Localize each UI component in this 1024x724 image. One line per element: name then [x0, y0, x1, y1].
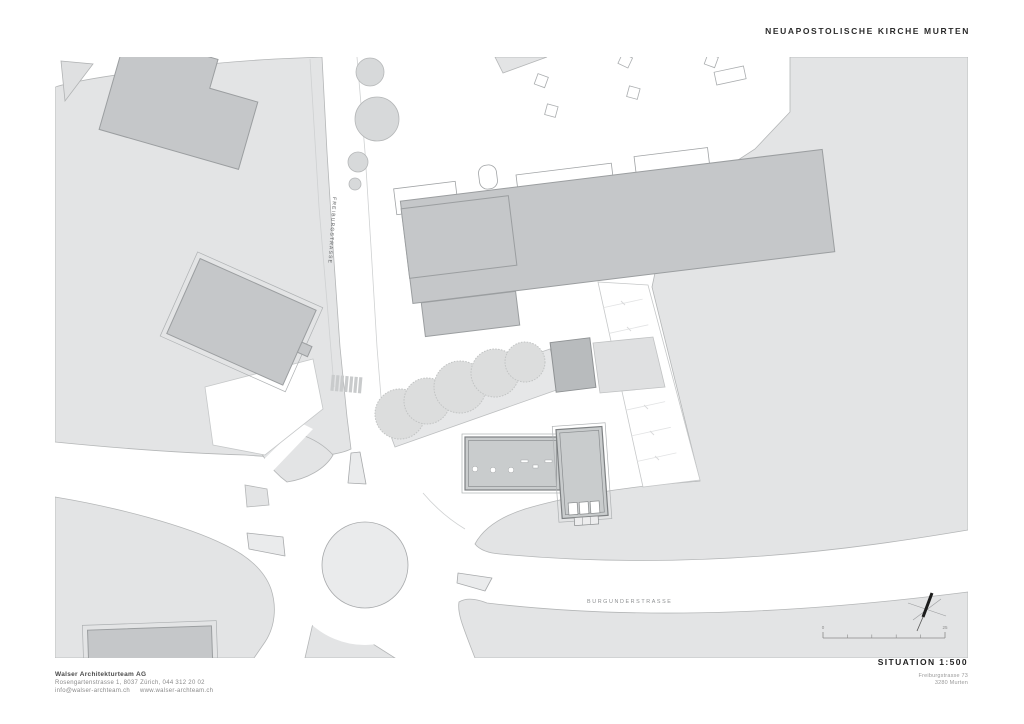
church-hall	[462, 434, 563, 493]
building-small-garage	[550, 338, 596, 393]
site-plan-map: FREIBURGSTRASSE BURGUNDERSTRASSE 0 25	[55, 57, 968, 658]
plan-sheet: NEUAPOSTOLISCHE KIRCHE MURTEN	[0, 0, 1024, 724]
architect-block: Walser Architekturteam AG Rosengartenstr…	[55, 671, 213, 695]
architect-email: info@walser-archteam.ch	[55, 688, 130, 694]
roundabout-centre-island	[322, 522, 408, 608]
architect-address: Rosengartenstrasse 1, 8037 Zürich, 044 3…	[55, 679, 213, 687]
drawing-title: SITUATION 1:500	[878, 657, 968, 667]
terrain-band-east-of-trees	[593, 337, 665, 393]
architect-website: www.walser-archteam.ch	[140, 688, 213, 694]
sheet-title: NEUAPOSTOLISCHE KIRCHE MURTEN	[765, 26, 970, 36]
drawing-title-block: SITUATION 1:500 Freiburgstrasse 73 3280 …	[878, 657, 968, 687]
project-address-line2: 3280 Murten	[878, 680, 968, 687]
church-tower	[552, 423, 612, 527]
architect-name: Walser Architekturteam AG	[55, 671, 213, 679]
site-plan-drawing: FREIBURGSTRASSE BURGUNDERSTRASSE 0 25	[55, 57, 968, 658]
scale-end-label: 25	[942, 625, 948, 630]
project-address-line1: Freiburgstrasse 73	[878, 673, 968, 680]
street-label-burgunderstrasse: BURGUNDERSTRASSE	[587, 599, 673, 605]
